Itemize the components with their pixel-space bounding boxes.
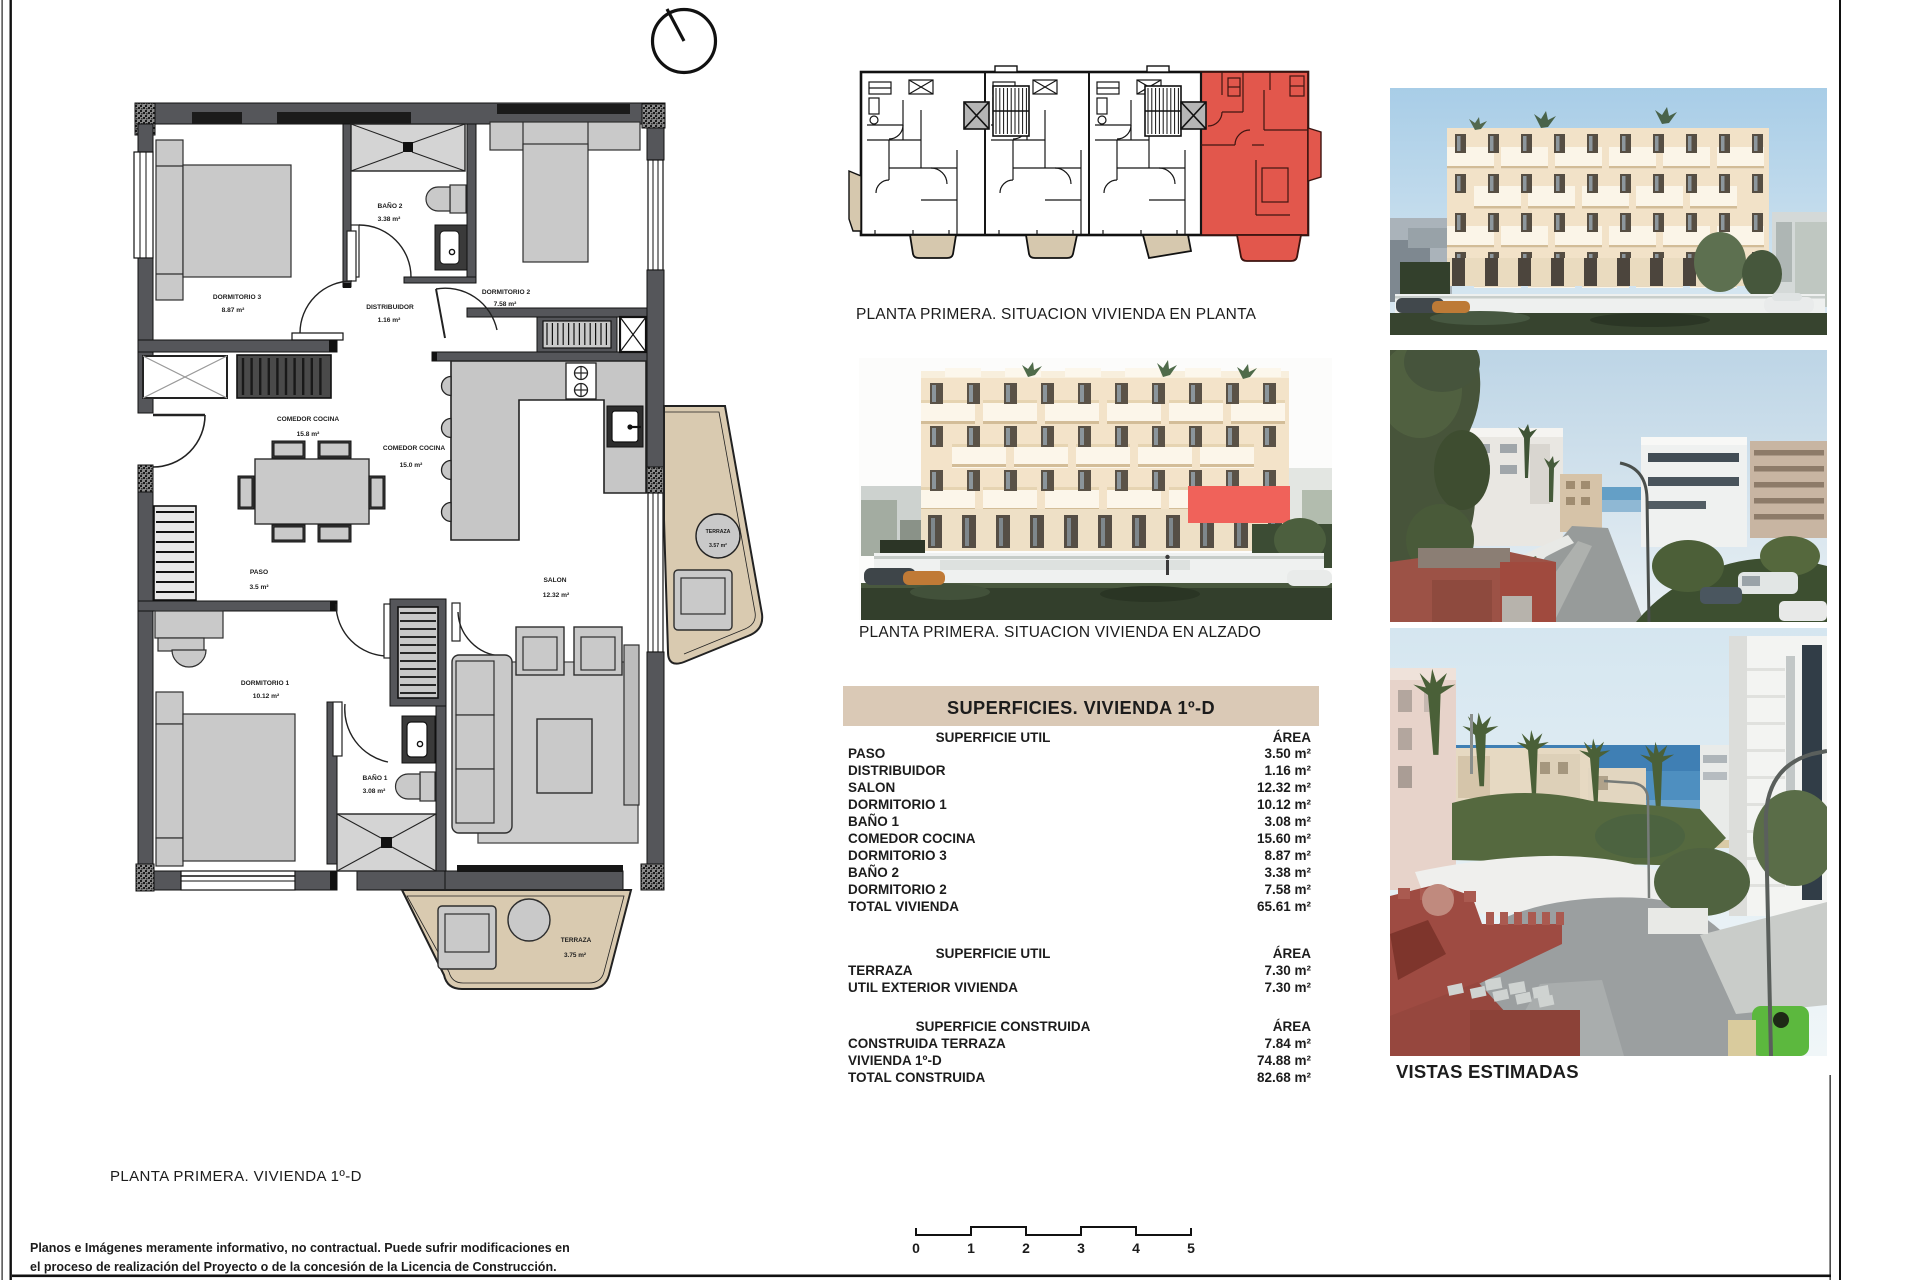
svg-text:DISTRIBUIDOR: DISTRIBUIDOR — [848, 763, 946, 778]
svg-text:TERRAZA: TERRAZA — [561, 937, 592, 944]
svg-text:12.32 m²: 12.32 m² — [1257, 780, 1312, 795]
svg-text:3.57 m²: 3.57 m² — [709, 543, 727, 549]
svg-text:3.08 m²: 3.08 m² — [1264, 814, 1311, 829]
svg-text:65.61 m²: 65.61 m² — [1257, 899, 1312, 914]
svg-text:7.58 m²: 7.58 m² — [494, 301, 518, 308]
svg-text:SALON: SALON — [543, 577, 566, 584]
svg-text:1: 1 — [967, 1240, 975, 1256]
svg-text:10.12 m²: 10.12 m² — [1257, 797, 1312, 812]
svg-text:3: 3 — [1077, 1240, 1085, 1256]
svg-text:TOTAL VIVIENDA: TOTAL VIVIENDA — [848, 899, 959, 914]
svg-text:7.30 m²: 7.30 m² — [1264, 980, 1311, 995]
svg-text:3.75 m²: 3.75 m² — [564, 952, 586, 959]
svg-text:COMEDOR COCINA: COMEDOR COCINA — [383, 445, 446, 452]
svg-text:BAÑO 1: BAÑO 1 — [848, 814, 899, 829]
svg-text:1.16 m²: 1.16 m² — [378, 317, 402, 324]
svg-text:SUPERFICIES. VIVIENDA 1º-D: SUPERFICIES. VIVIENDA 1º-D — [947, 698, 1215, 718]
svg-text:VIVIENDA 1º-D: VIVIENDA 1º-D — [848, 1053, 942, 1068]
svg-text:0: 0 — [912, 1240, 920, 1256]
svg-text:12.32 m²: 12.32 m² — [543, 592, 570, 599]
svg-text:PASO: PASO — [250, 569, 268, 576]
svg-text:DISTRIBUIDOR: DISTRIBUIDOR — [366, 304, 414, 311]
svg-text:7.30 m²: 7.30 m² — [1264, 963, 1311, 978]
svg-text:DORMITORIO 1: DORMITORIO 1 — [848, 797, 947, 812]
svg-text:BAÑO 2: BAÑO 2 — [378, 201, 403, 210]
svg-text:SUPERFICIE CONSTRUIDA: SUPERFICIE CONSTRUIDA — [916, 1019, 1091, 1034]
svg-text:Planos e Imágenes meramente in: Planos e Imágenes meramente informativo,… — [30, 1241, 570, 1255]
svg-text:SUPERFICIE UTIL: SUPERFICIE UTIL — [936, 946, 1051, 961]
svg-text:3.08 m²: 3.08 m² — [363, 788, 387, 795]
svg-text:DORMITORIO 1: DORMITORIO 1 — [241, 680, 290, 687]
svg-text:DORMITORIO 2: DORMITORIO 2 — [848, 882, 947, 897]
svg-text:3.38 m²: 3.38 m² — [378, 216, 402, 223]
svg-text:SALON: SALON — [848, 780, 895, 795]
svg-text:3.38 m²: 3.38 m² — [1264, 865, 1311, 880]
svg-text:7.84 m²: 7.84 m² — [1264, 1036, 1311, 1051]
svg-text:15.0 m²: 15.0 m² — [400, 462, 424, 469]
svg-text:TERRAZA: TERRAZA — [706, 529, 731, 535]
svg-text:TERRAZA: TERRAZA — [848, 963, 913, 978]
svg-text:82.68 m²: 82.68 m² — [1257, 1070, 1312, 1085]
svg-text:SUPERFICIE UTIL: SUPERFICIE UTIL — [936, 730, 1051, 745]
svg-text:1.16 m²: 1.16 m² — [1264, 763, 1311, 778]
svg-text:ÁREA: ÁREA — [1273, 946, 1312, 961]
svg-text:DORMITORIO 3: DORMITORIO 3 — [848, 848, 947, 863]
svg-text:ÁREA: ÁREA — [1273, 730, 1312, 745]
svg-text:2: 2 — [1022, 1240, 1030, 1256]
svg-text:10.12 m²: 10.12 m² — [253, 693, 280, 700]
svg-text:8.87 m²: 8.87 m² — [1264, 848, 1311, 863]
svg-text:PLANTA PRIMERA. VIVIENDA 1º-D: PLANTA PRIMERA. VIVIENDA 1º-D — [110, 1168, 362, 1185]
svg-text:DORMITORIO 2: DORMITORIO 2 — [482, 289, 531, 296]
svg-text:PLANTA PRIMERA. SITUACION VIVI: PLANTA PRIMERA. SITUACION VIVIENDA EN AL… — [859, 624, 1261, 641]
svg-text:3.50 m²: 3.50 m² — [1264, 746, 1311, 761]
svg-text:CONSTRUIDA TERRAZA: CONSTRUIDA TERRAZA — [848, 1036, 1006, 1051]
svg-text:TOTAL CONSTRUIDA: TOTAL CONSTRUIDA — [848, 1070, 985, 1085]
svg-text:PASO: PASO — [848, 746, 885, 761]
svg-text:BAÑO 2: BAÑO 2 — [848, 865, 899, 880]
svg-text:UTIL EXTERIOR VIVIENDA: UTIL EXTERIOR VIVIENDA — [848, 980, 1018, 995]
svg-text:8.87 m²: 8.87 m² — [222, 307, 246, 314]
svg-text:5: 5 — [1187, 1240, 1195, 1256]
svg-text:74.88 m²: 74.88 m² — [1257, 1053, 1312, 1068]
svg-text:COMEDOR COCINA: COMEDOR COCINA — [277, 416, 340, 423]
svg-text:BAÑO 1: BAÑO 1 — [363, 773, 388, 782]
svg-text:3.5 m²: 3.5 m² — [249, 584, 269, 591]
svg-text:4: 4 — [1132, 1240, 1140, 1256]
svg-text:15.60 m²: 15.60 m² — [1257, 831, 1312, 846]
svg-text:COMEDOR COCINA: COMEDOR COCINA — [848, 831, 976, 846]
svg-text:VISTAS ESTIMADAS: VISTAS ESTIMADAS — [1396, 1061, 1579, 1082]
svg-text:PLANTA PRIMERA. SITUACION VIVI: PLANTA PRIMERA. SITUACION VIVIENDA EN PL… — [856, 306, 1257, 323]
svg-text:15.8 m²: 15.8 m² — [297, 431, 321, 438]
svg-text:el proceso de realización del: el proceso de realización del Proyecto o… — [30, 1260, 557, 1274]
svg-text:DORMITORIO 3: DORMITORIO 3 — [213, 294, 262, 301]
svg-text:ÁREA: ÁREA — [1273, 1019, 1312, 1034]
svg-text:7.58 m²: 7.58 m² — [1264, 882, 1311, 897]
